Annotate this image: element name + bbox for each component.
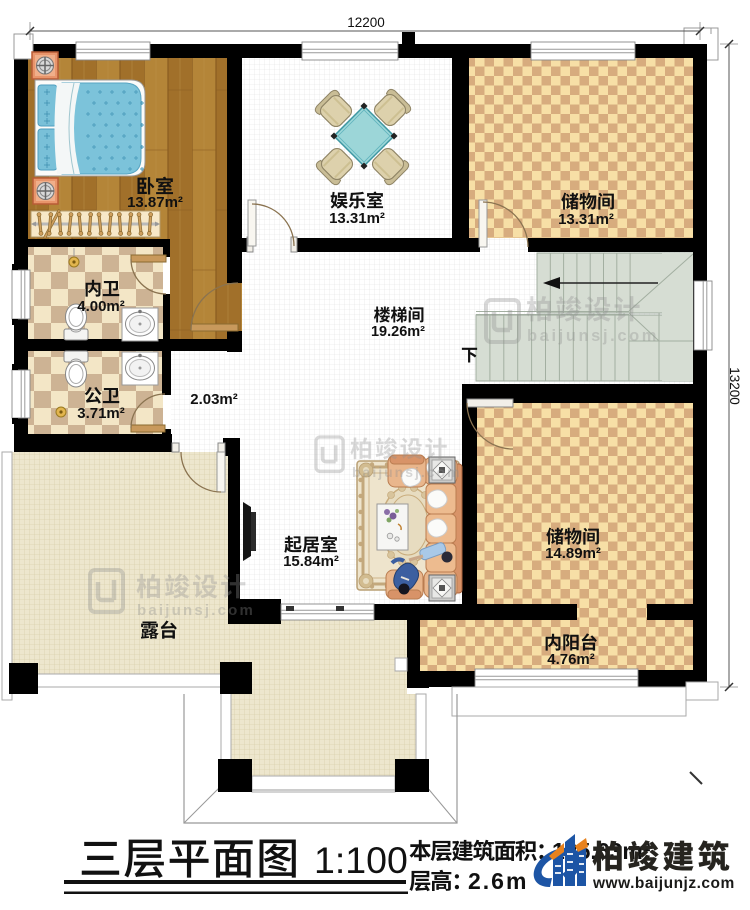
svg-text:baijunsj.com: baijunsj.com: [527, 327, 659, 345]
svg-text:baijunsj.com: baijunsj.com: [352, 464, 462, 480]
svg-text:1:100: 1:100: [314, 839, 408, 881]
svg-text:13200: 13200: [727, 367, 742, 405]
svg-text:www.baijunjz.com: www.baijunjz.com: [592, 875, 735, 892]
svg-text:baijunsj.com: baijunsj.com: [137, 602, 255, 619]
svg-text:19.26m²: 19.26m²: [371, 324, 425, 340]
svg-text:2.6m: 2.6m: [468, 868, 528, 894]
svg-text:4.76m²: 4.76m²: [547, 651, 595, 668]
svg-text:12200: 12200: [347, 15, 385, 30]
svg-text:13.31m²: 13.31m²: [558, 211, 614, 228]
svg-text:15.84m²: 15.84m²: [283, 553, 339, 570]
svg-text:13.87m²: 13.87m²: [127, 194, 183, 211]
svg-text:2.03m²: 2.03m²: [190, 391, 238, 408]
svg-text:14.89m²: 14.89m²: [545, 545, 601, 562]
svg-text:4.00m²: 4.00m²: [77, 298, 125, 315]
svg-text:3.71m²: 3.71m²: [77, 405, 125, 422]
svg-text:13.31m²: 13.31m²: [329, 210, 385, 227]
